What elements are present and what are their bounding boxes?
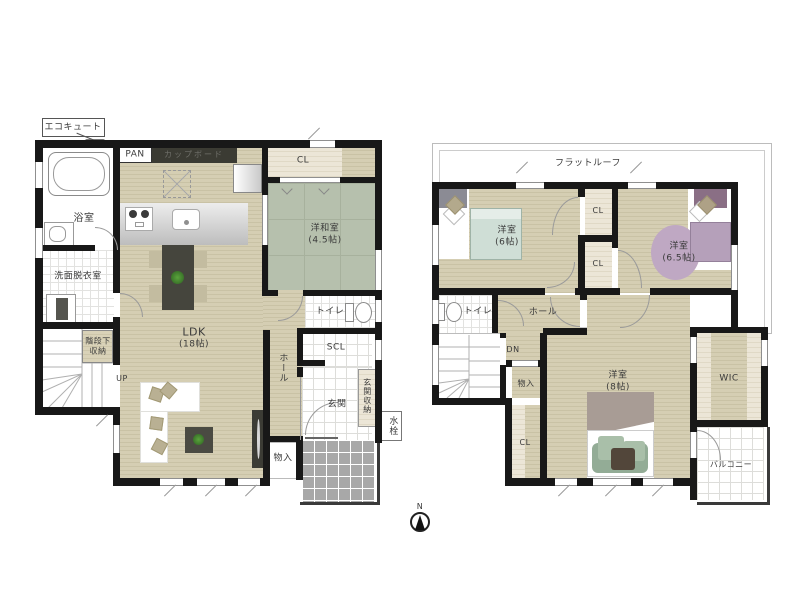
window [432, 345, 439, 385]
compass-needle [415, 515, 425, 530]
compass-north-label: N [417, 502, 423, 512]
bedroom65-bed [690, 222, 731, 262]
toilet2f-bowl [446, 302, 462, 322]
wall [540, 333, 547, 478]
window [555, 478, 577, 486]
closet2-label: CL [592, 259, 603, 269]
bedroom8-cushion-dark [611, 448, 635, 470]
wall [500, 333, 506, 338]
door-gap [690, 432, 697, 458]
wall [432, 182, 738, 189]
hall2f-label: ホール [529, 308, 558, 319]
window [593, 478, 631, 486]
stairs2f [439, 335, 500, 398]
window [628, 182, 656, 189]
wall [612, 242, 618, 248]
storage2f-label: 物入 [518, 379, 535, 389]
window [643, 478, 673, 486]
door-gap [690, 337, 697, 363]
wall [578, 182, 585, 197]
sliding-door [512, 360, 538, 367]
wall [432, 398, 512, 405]
wall [578, 235, 618, 242]
window [516, 182, 544, 189]
wall [690, 420, 768, 427]
wall [690, 327, 768, 333]
window [432, 300, 439, 324]
closet3-label: CL [519, 438, 530, 448]
floor2-plan: フラットルーフ 洋室 (6帖) CL CL 洋室 (6.5帖) トイレ ホール … [0, 0, 800, 600]
closet1-label: CL [592, 206, 603, 216]
window-tick [558, 484, 570, 496]
wall [432, 288, 545, 295]
wall [650, 288, 738, 295]
window-tick [652, 484, 664, 496]
window [761, 340, 768, 366]
toilet2f-label: トイレ [464, 307, 493, 318]
wall [500, 365, 506, 398]
bedroom65-label: 洋室 [669, 242, 688, 253]
down-label: DN [506, 345, 519, 355]
wall [612, 288, 620, 295]
window-tick [605, 484, 617, 496]
wic-shelf-left [697, 333, 711, 420]
balcony-label: バルコニー [710, 460, 752, 470]
wall [612, 182, 618, 242]
bedroom6-size: (6帖) [495, 238, 519, 249]
bedroom8-size: (8帖) [606, 383, 630, 394]
flat-roof-label: フラットルーフ [555, 159, 621, 170]
wall [578, 235, 585, 293]
floor-plan-canvas: エコキュート 浴室 洗面脱衣室 PAN カップボード CL 洋和室 (4.5帖)… [0, 0, 800, 600]
window [731, 245, 738, 290]
wall [505, 398, 512, 485]
bedroom8-label: 洋室 [608, 371, 627, 382]
bedroom6-label: 洋室 [497, 226, 516, 237]
compass: N [405, 500, 439, 540]
bedroom65-size: (6.5帖) [662, 254, 695, 265]
wic-shelf-right [747, 333, 761, 420]
window [432, 225, 439, 265]
wic-label: WIC [719, 374, 738, 385]
wall [543, 328, 587, 335]
